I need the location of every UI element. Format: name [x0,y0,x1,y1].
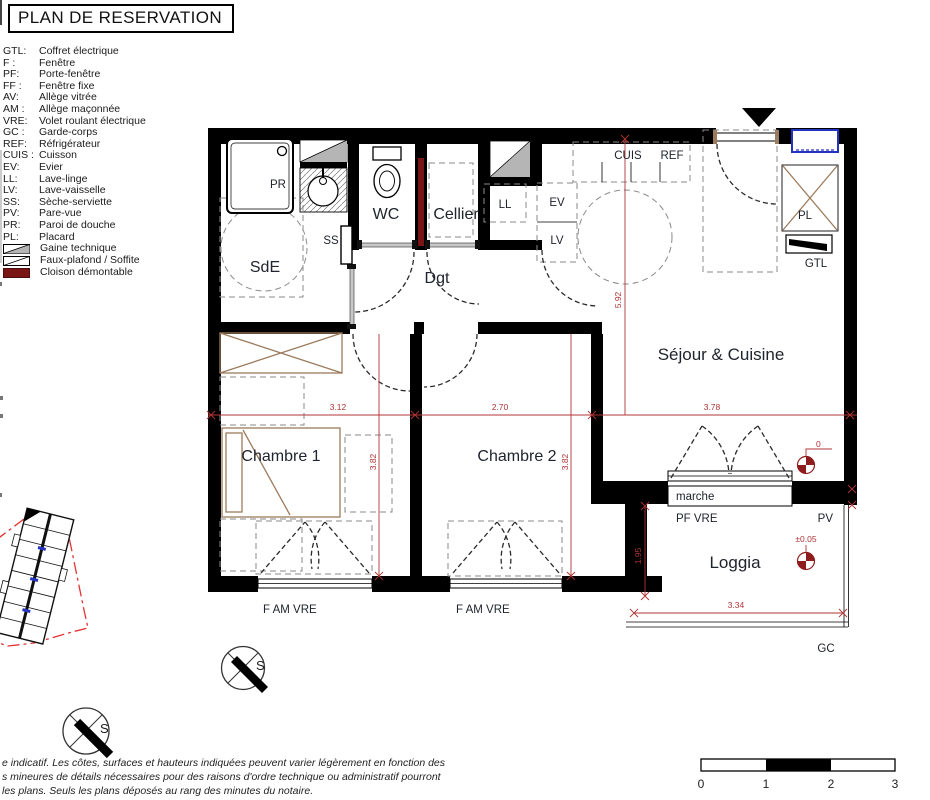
scale-bar: 0 1 2 3 [698,759,899,791]
label-ll: LL [499,199,512,211]
dim-334: 3.34 [728,600,745,610]
svg-text:S: S [256,658,265,673]
level-marker-loggia [798,553,815,570]
label-marche: marche [676,491,714,503]
disclaimer-line: s mineures de détails nécessaires pour d… [2,771,452,785]
room-label-chambre2: Chambre 2 [477,448,556,465]
label-pv: PV [818,513,834,525]
towel-radiator [341,226,352,264]
room-label-sejour: Séjour & Cuisine [658,345,785,364]
label-cuis: CUIS [614,150,642,162]
niche-blue [792,130,838,152]
label-pf-vre: PF VRE [676,513,718,525]
label-ss: SS [323,235,339,247]
room-label-sde: SdE [250,259,280,276]
room-label-dgt: Dgt [425,270,450,287]
room-label-chambre1: Chambre 1 [241,448,320,465]
scale-3: 3 [892,777,899,791]
dim-382a: 3.82 [368,453,378,470]
scale-2: 2 [828,777,835,791]
gtl-box [786,235,832,253]
label-ev: EV [549,197,565,209]
label-f-am-vre-2: F AM VRE [456,604,510,616]
label-f-am-vre-1: F AM VRE [263,604,317,616]
site-key-plan [0,507,88,646]
dim-312: 3.12 [330,402,347,412]
dim-592: 5.92 [613,291,623,308]
gaine-technique-cellier [490,141,530,177]
entrance-arrow-icon [742,108,776,127]
disclaimer: e indicatif. Les côtes, surfaces et haut… [2,757,452,798]
room-label-loggia: Loggia [709,553,761,572]
room-label-cellier: Cellier [433,206,479,223]
wardrobe [220,333,342,373]
disclaimer-line: e indicatif. Les côtes, surfaces et haut… [2,757,452,771]
level-marker-sejour [798,457,815,474]
plan-page: PLAN DE RESERVATION GTL:Coffret électriq… [0,0,930,800]
scale-1: 1 [763,777,770,791]
room-label-wc: WC [373,206,400,223]
shower-tray [227,139,293,213]
label-pr: PR [270,179,286,191]
label-ref: REF [661,150,684,162]
washbasin [300,168,347,212]
page-edge-artifacts [0,0,3,497]
svg-text:S: S [100,721,109,736]
dim-382b: 3.82 [560,453,570,470]
label-pl: PL [798,210,813,222]
level-zero: 0 [816,439,821,449]
cloison-demontable [418,158,424,246]
dim-195: 1.95 [633,547,643,564]
label-lv: LV [550,235,564,247]
dim-378: 3.78 [704,402,721,412]
scale-0: 0 [698,777,705,791]
dim-270: 2.70 [492,402,509,412]
disclaimer-line: les plans. Seuls les plans déposés au ra… [2,785,452,799]
compass-icon: S [222,647,266,691]
bed [222,428,340,517]
label-gtl: GTL [805,258,828,270]
label-gc: GC [817,643,834,655]
level-loggia: ±0.05 [795,534,816,544]
toilet [373,147,401,198]
gaine-technique-sde [300,140,347,162]
floor-plan: 3.12 2.70 3.78 3.82 3.82 5.92 1.95 3.34 … [0,0,930,800]
compass-icon: S [63,708,110,755]
